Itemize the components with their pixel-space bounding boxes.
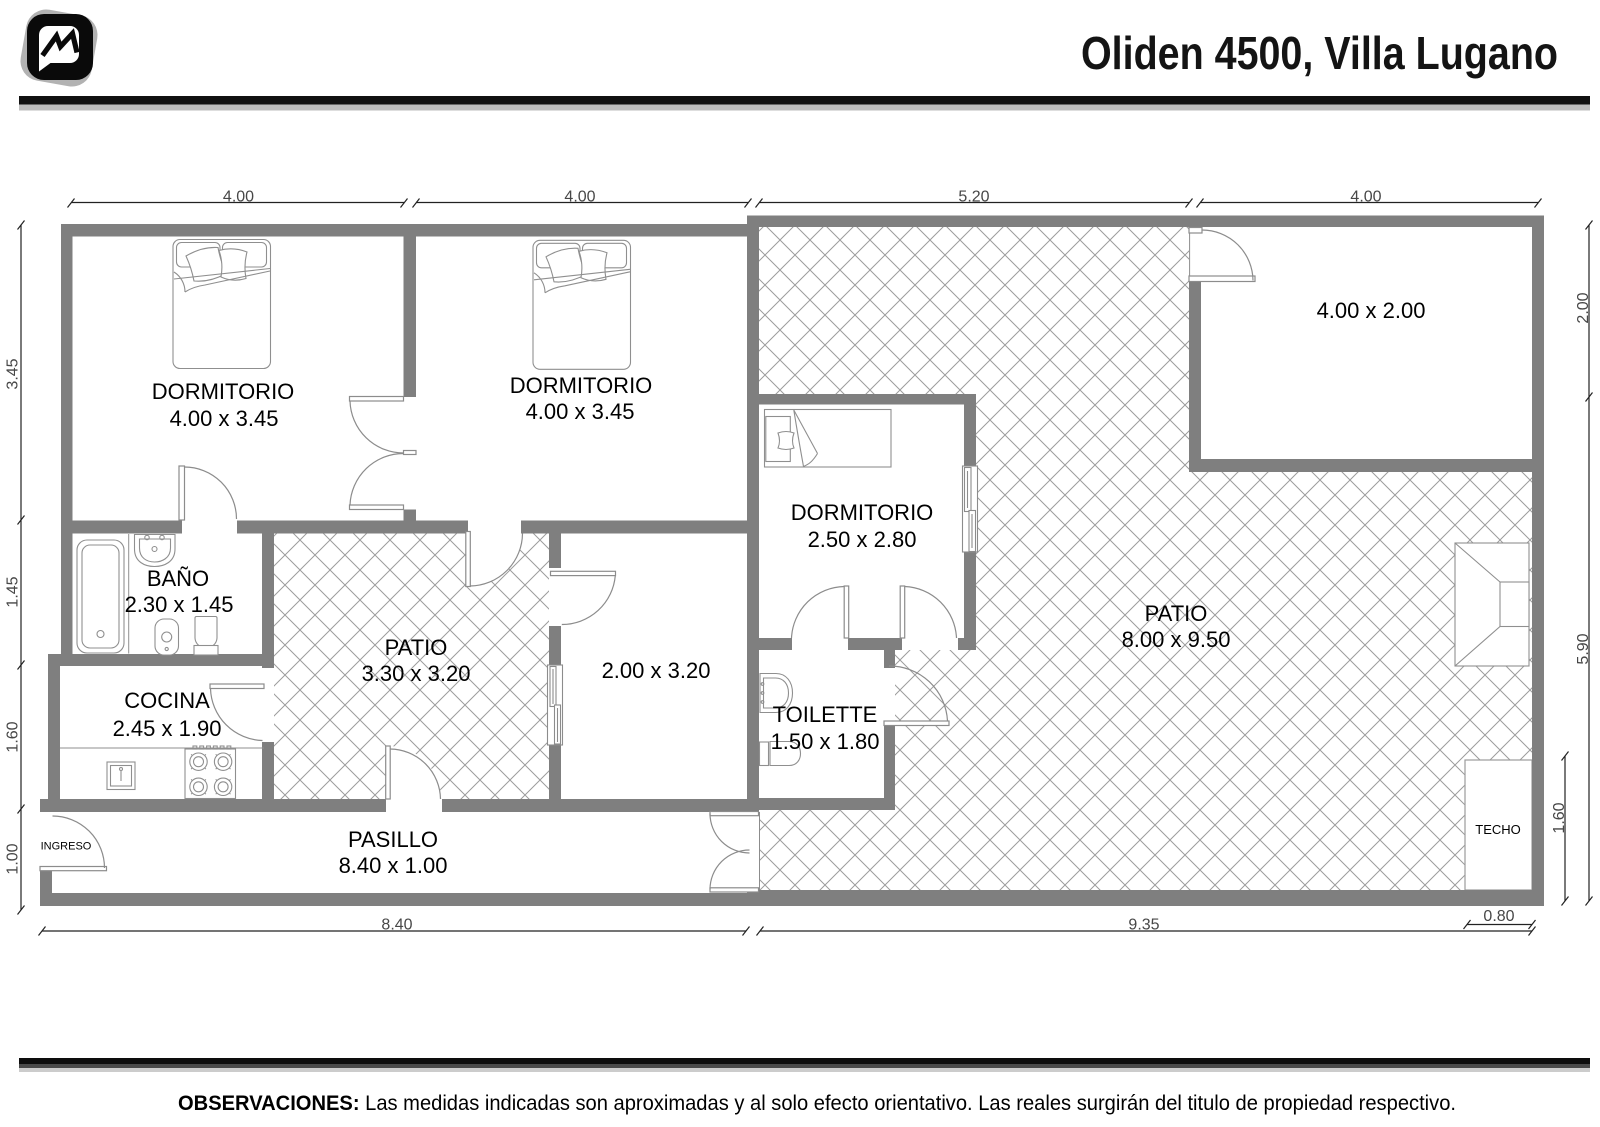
svg-text:2.50 x 2.80: 2.50 x 2.80 bbox=[808, 527, 917, 552]
svg-text:0.80: 0.80 bbox=[1483, 908, 1514, 925]
svg-text:4.00 x 3.45: 4.00 x 3.45 bbox=[170, 406, 279, 431]
svg-text:3.30 x 3.20: 3.30 x 3.20 bbox=[362, 661, 471, 686]
svg-text:4.00: 4.00 bbox=[223, 189, 254, 206]
svg-text:2.00 x 3.20: 2.00 x 3.20 bbox=[602, 658, 711, 683]
svg-text:1.00: 1.00 bbox=[5, 843, 22, 874]
svg-text:5.90: 5.90 bbox=[1575, 633, 1592, 664]
svg-text:BAÑO: BAÑO bbox=[147, 566, 209, 591]
svg-text:4.00 x 3.45: 4.00 x 3.45 bbox=[526, 399, 635, 424]
svg-text:1.60: 1.60 bbox=[1551, 802, 1568, 833]
svg-text:OBSERVACIONES: Las medidas ind: OBSERVACIONES: Las medidas indicadas son… bbox=[178, 1091, 1456, 1115]
svg-text:DORMITORIO: DORMITORIO bbox=[791, 500, 934, 525]
svg-text:PATIO: PATIO bbox=[1145, 601, 1208, 626]
svg-text:INGRESO: INGRESO bbox=[41, 841, 92, 853]
svg-text:DORMITORIO: DORMITORIO bbox=[510, 373, 653, 398]
svg-text:4.00 x 2.00: 4.00 x 2.00 bbox=[1317, 298, 1426, 323]
svg-text:PATIO: PATIO bbox=[385, 635, 448, 660]
svg-text:2.00: 2.00 bbox=[1575, 292, 1592, 323]
svg-text:COCINA: COCINA bbox=[124, 688, 210, 713]
svg-text:4.00: 4.00 bbox=[564, 189, 595, 206]
svg-text:5.20: 5.20 bbox=[958, 189, 989, 206]
svg-text:1.50 x 1.80: 1.50 x 1.80 bbox=[771, 729, 880, 754]
svg-text:8.40 x 1.00: 8.40 x 1.00 bbox=[339, 853, 448, 878]
svg-text:1.60: 1.60 bbox=[5, 721, 22, 752]
svg-text:2.45 x 1.90: 2.45 x 1.90 bbox=[113, 716, 222, 741]
svg-text:9.35: 9.35 bbox=[1128, 917, 1159, 934]
svg-text:4.00: 4.00 bbox=[1350, 189, 1381, 206]
svg-text:TOILETTE: TOILETTE bbox=[773, 702, 878, 727]
svg-text:Oliden 4500, Villa Lugano: Oliden 4500, Villa Lugano bbox=[1081, 27, 1558, 79]
svg-text:3.45: 3.45 bbox=[5, 358, 22, 389]
svg-text:DORMITORIO: DORMITORIO bbox=[152, 379, 295, 404]
svg-text:TECHO: TECHO bbox=[1475, 822, 1521, 837]
svg-text:8.00 x 9.50: 8.00 x 9.50 bbox=[1122, 627, 1231, 652]
svg-text:8.40: 8.40 bbox=[381, 917, 412, 934]
svg-text:1.45: 1.45 bbox=[5, 576, 22, 607]
svg-text:PASILLO: PASILLO bbox=[348, 827, 438, 852]
svg-text:2.30 x 1.45: 2.30 x 1.45 bbox=[125, 592, 234, 617]
